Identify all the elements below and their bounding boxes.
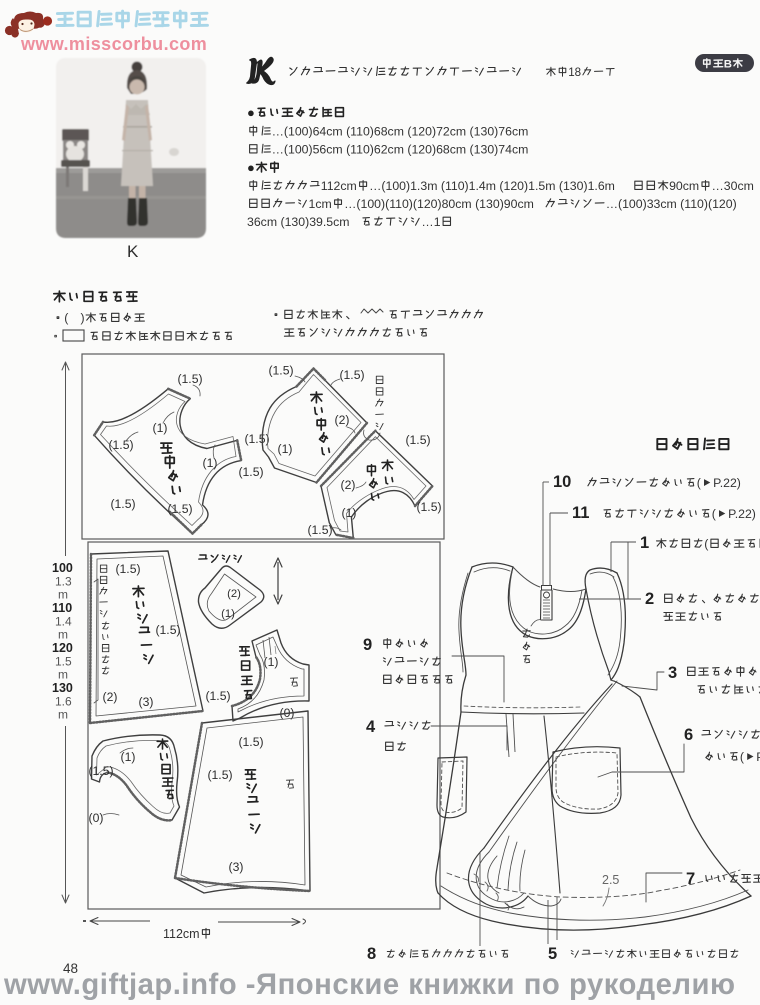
svg-text:10: 10 [553,473,571,491]
svg-text:130: 130 [52,681,73,695]
svg-text:(1.5): (1.5) [115,562,140,576]
svg-text:7: 7 [686,870,695,888]
svg-text:(1.5): (1.5) [416,500,441,514]
svg-text:1: 1 [640,534,649,552]
svg-text:100: 100 [52,561,73,575]
svg-text:P.22): P.22) [713,476,741,490]
svg-text:(1.5): (1.5) [108,438,133,452]
svg-text:(1.5): (1.5) [238,735,263,749]
svg-text:90cm: 90cm [669,179,699,193]
svg-text:(2): (2) [341,478,356,492]
svg-text:www.misscorbu.com: www.misscorbu.com [20,34,207,54]
svg-text:(1): (1) [264,655,279,669]
svg-text:112cm: 112cm [163,927,200,941]
svg-text:9: 9 [363,636,372,654]
svg-text:…(100)64cm (110)68cm (120)72: …(100)64cm (110)68cm (120)72cm (130)76cm [272,125,529,139]
svg-text:112cm: 112cm [321,179,357,193]
svg-text:…(100)1.3m (110)1.4m (120)1.: …(100)1.3m (110)1.4m (120)1.5m (130)1.6m [369,179,615,193]
svg-text:(1.5): (1.5) [405,433,430,447]
svg-text:11: 11 [572,504,589,522]
svg-text:18: 18 [568,66,581,79]
svg-text:m: m [58,708,68,722]
svg-text:(2): (2) [103,690,118,704]
svg-text:(1.5): (1.5) [268,364,293,378]
svg-text:8: 8 [367,945,376,963]
svg-text:6: 6 [684,726,693,744]
svg-text:www.giftjap.info -Японские кни: www.giftjap.info -Японские книжки по рук… [3,968,736,1000]
svg-text:…(100)(110)(120)80cm (130)90c: …(100)(110)(120)80cm (130)90cm [344,197,534,211]
svg-text:…1: …1 [421,215,440,229]
svg-text:1.6: 1.6 [55,694,72,708]
svg-text:…30cm: …30cm [712,179,754,193]
svg-text:(1.5): (1.5) [88,764,113,778]
svg-text:(1): (1) [342,506,357,520]
svg-text:(1.5): (1.5) [110,497,135,511]
svg-text:(1.5): (1.5) [177,372,202,386]
svg-text:…(100)33cm (110)(120): …(100)33cm (110)(120) [606,197,737,211]
svg-text:1.3: 1.3 [55,574,72,588]
svg-text:(1.5): (1.5) [307,523,332,537]
svg-text:(2): (2) [227,588,241,600]
svg-text:1.4: 1.4 [55,614,72,628]
svg-text:m: m [58,628,68,642]
svg-text:K: K [127,242,139,261]
svg-text:●: ● [247,105,255,120]
svg-text:m: m [58,588,68,602]
svg-text:…(100)56cm (110)62cm (120)68: …(100)56cm (110)62cm (120)68cm (130)74cm [272,143,529,157]
svg-text:B: B [724,59,732,71]
svg-text:1.5: 1.5 [55,654,72,668]
svg-text:(1): (1) [121,750,136,764]
svg-text:36cm (130)39.5cm: 36cm (130)39.5cm [247,215,350,229]
svg-text:(0): (0) [89,811,104,825]
svg-text:●: ● [247,160,255,175]
svg-text:(2): (2) [335,413,350,427]
svg-text:1cm: 1cm [309,197,332,211]
svg-text:P.22): P.22) [728,507,756,521]
svg-text:(1.5): (1.5) [244,432,269,446]
svg-text:(1): (1) [278,442,293,456]
svg-text:(1.5): (1.5) [207,768,232,782]
svg-text:(1): (1) [153,421,168,435]
svg-text:(1.5): (1.5) [339,368,364,382]
svg-text:(3): (3) [229,860,244,874]
svg-text:4: 4 [366,718,376,736]
svg-text:120: 120 [52,641,73,655]
svg-text:): ) [81,311,85,325]
svg-text:(1.5): (1.5) [155,623,180,637]
svg-text:P.: P. [756,750,760,764]
svg-text:(1.5): (1.5) [205,689,230,703]
svg-text:(1): (1) [221,608,235,620]
svg-text:5: 5 [548,945,557,963]
svg-text:(1.5): (1.5) [238,465,263,479]
svg-text:(1.5): (1.5) [167,502,192,516]
svg-text:2.5: 2.5 [602,873,619,887]
svg-text:(: ( [64,311,68,325]
svg-text:2: 2 [645,590,654,608]
svg-text:(3): (3) [139,695,154,709]
svg-text:3: 3 [668,664,677,682]
svg-text:(1): (1) [203,456,218,470]
svg-text:110: 110 [52,601,72,615]
svg-text:m: m [58,668,68,682]
